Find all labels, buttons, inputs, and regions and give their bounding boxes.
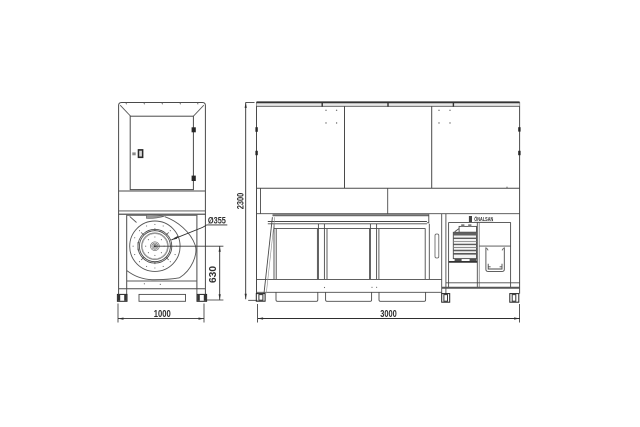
svg-text:630: 630 (208, 266, 219, 283)
svg-text:3000: 3000 (380, 309, 397, 320)
svg-text:2300: 2300 (236, 193, 247, 210)
svg-text:1000: 1000 (154, 309, 171, 320)
svg-text:ÖNALSAN: ÖNALSAN (474, 216, 493, 223)
svg-text:Ø355: Ø355 (208, 215, 226, 225)
